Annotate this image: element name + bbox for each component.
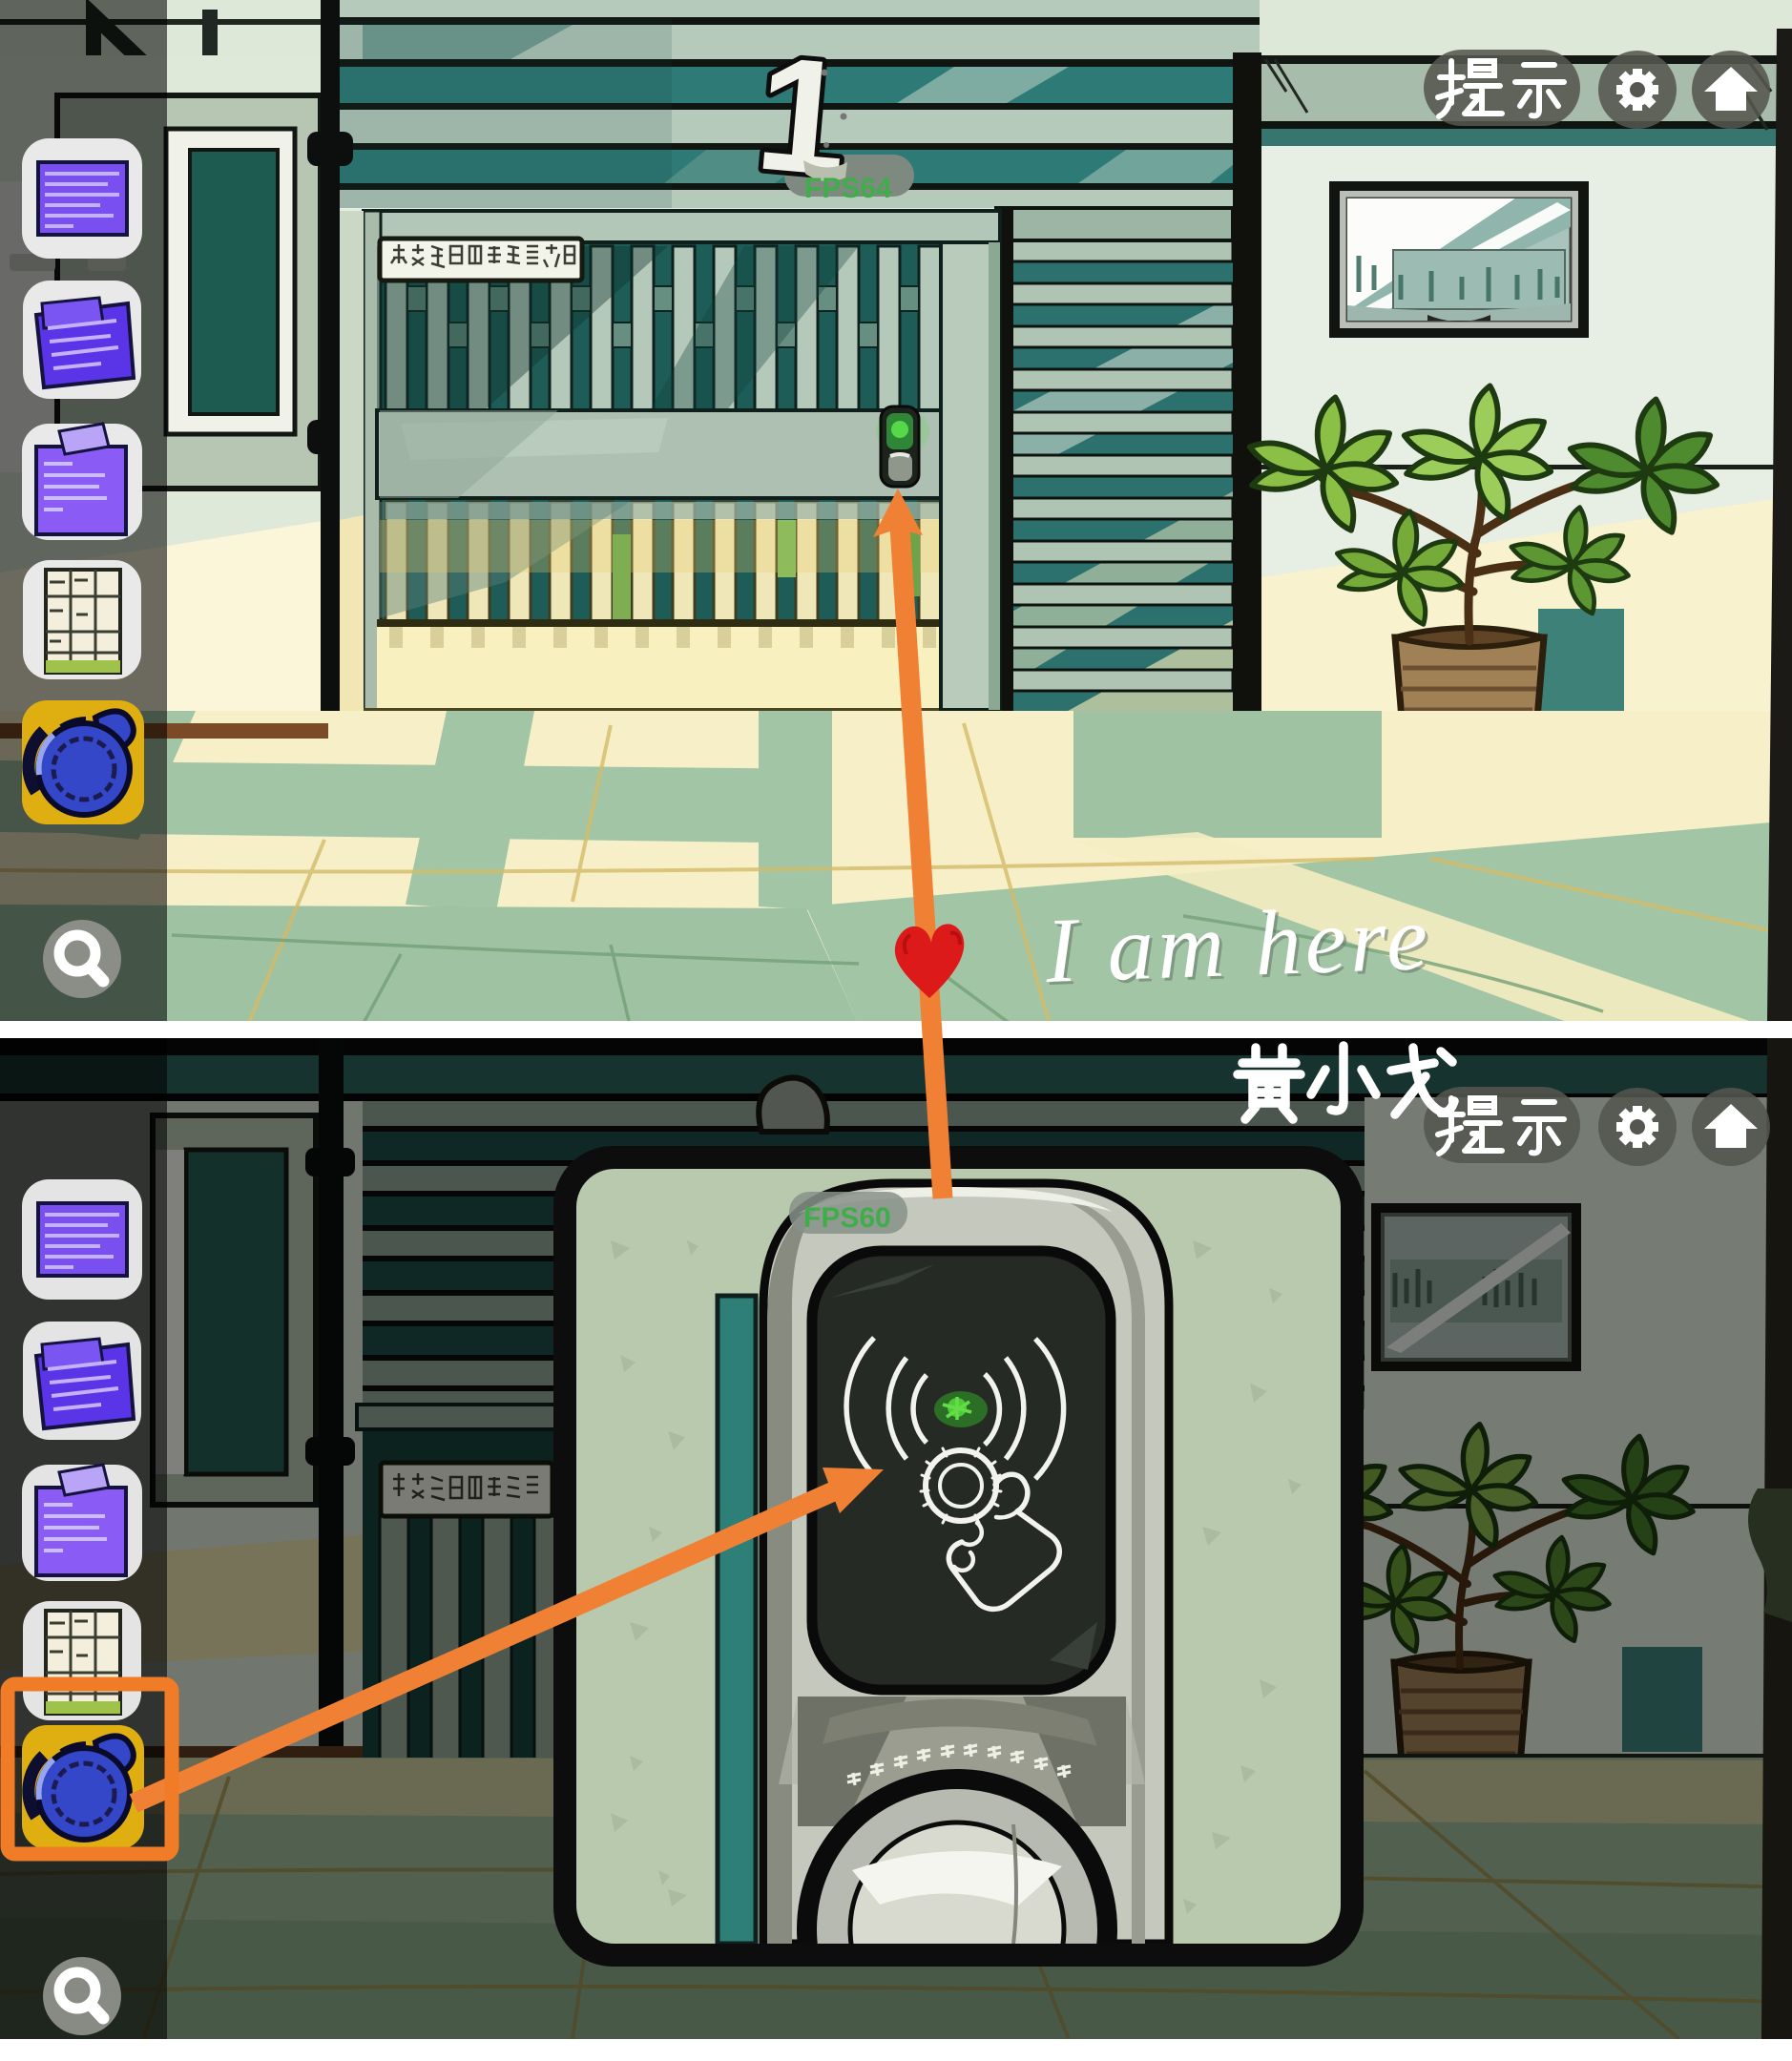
svg-text:I am here: I am here: [1043, 886, 1433, 1002]
